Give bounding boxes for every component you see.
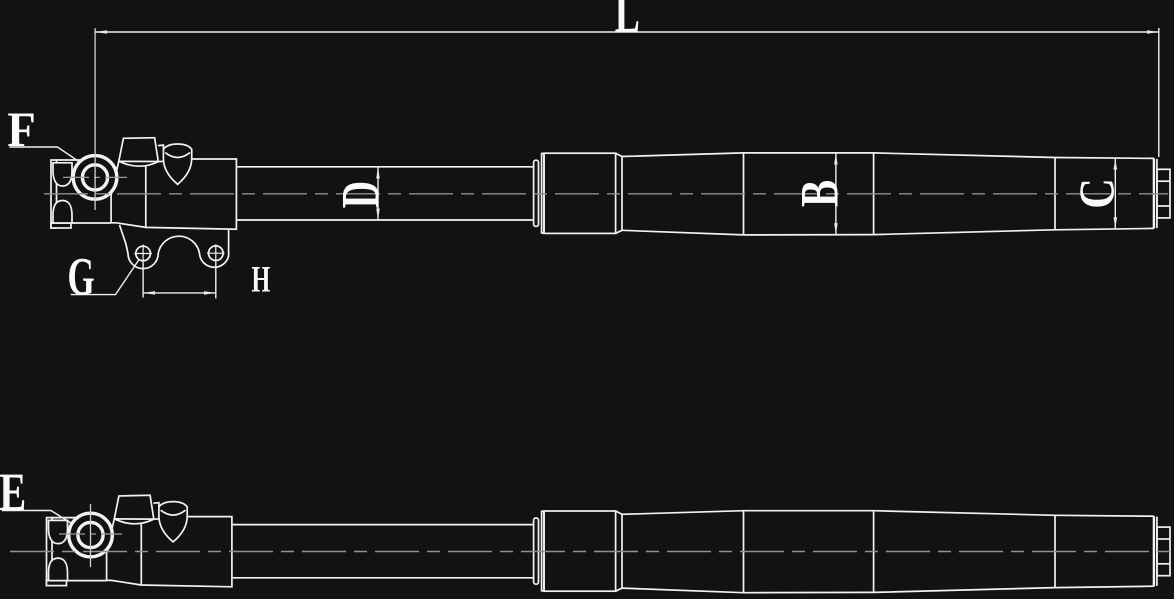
svg-text:B: B <box>790 180 850 207</box>
svg-text:G: G <box>68 246 95 307</box>
svg-text:F: F <box>7 103 36 158</box>
svg-text:E: E <box>0 464 26 523</box>
svg-text:D: D <box>332 181 391 208</box>
svg-text:H: H <box>252 258 271 299</box>
svg-text:C: C <box>1070 178 1125 209</box>
svg-text:L: L <box>615 0 640 43</box>
